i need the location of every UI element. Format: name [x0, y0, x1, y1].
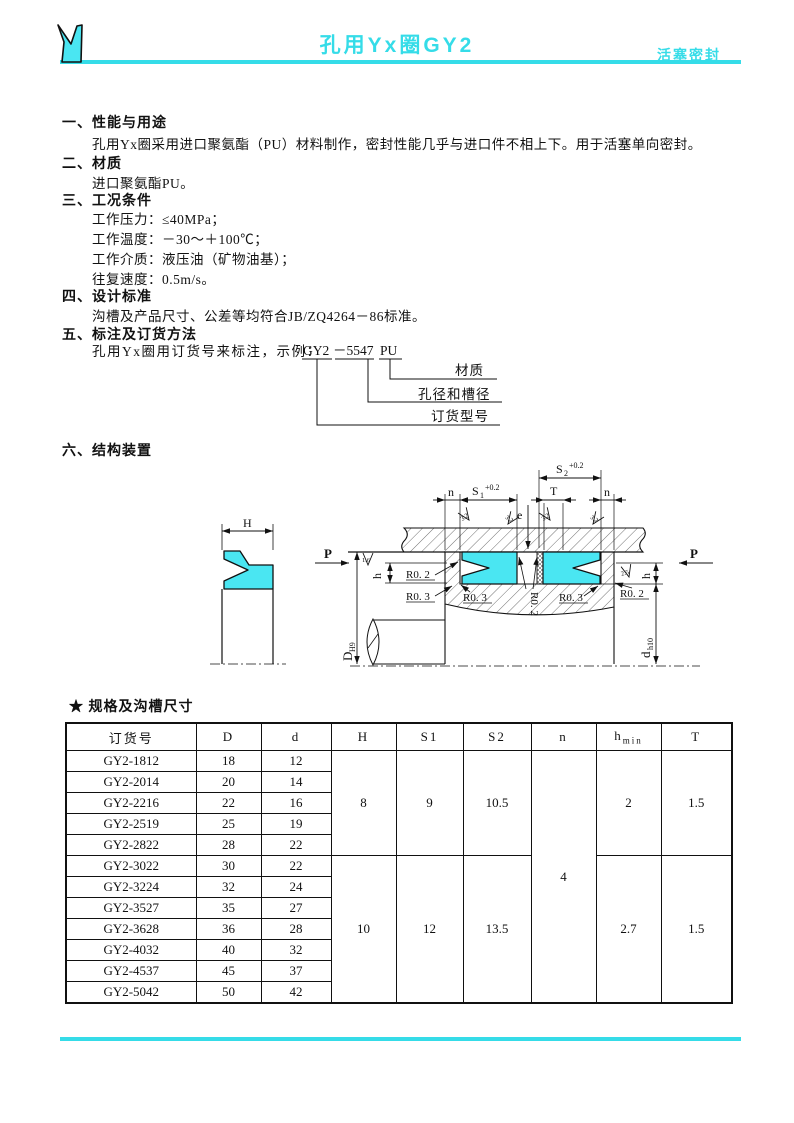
dim-n-left-label: n: [448, 485, 454, 499]
roughness-groove-icon: 3.2: [503, 511, 519, 527]
dim-D-label: D H9: [340, 642, 357, 661]
radius-callouts: R0. 2 R0. 3 R0. 3 R0. 3 R0. 2 R0. 2: [406, 557, 649, 616]
radius-right-label: R0. 2: [620, 588, 644, 600]
section-2-heading: 二、材质: [62, 153, 122, 173]
installed-seal-right: [543, 552, 600, 584]
working-medium-line: 工作介质：液压油（矿物油基）；: [92, 248, 295, 268]
order-code-cell: GY2-4537: [66, 961, 196, 982]
rod-break-symbol: [367, 619, 379, 665]
order-code-cell: GY2-4032: [66, 940, 196, 961]
svg-text:2: 2: [564, 469, 568, 478]
group2-T-cell: 1.5: [661, 856, 732, 1004]
svg-text:R0. 2: R0. 2: [528, 592, 540, 616]
rod-break-hatch: [368, 634, 378, 648]
col-header-S2: S2: [463, 723, 531, 751]
section-6-heading: 六、结构装置: [62, 440, 152, 460]
speed-line: 往复速度：0.5m/s。: [92, 268, 215, 288]
cylinder-wall-hatched: [402, 528, 646, 552]
ordering-label-model: 订货型号: [431, 408, 489, 424]
svg-text:S: S: [556, 462, 563, 476]
dim-e-label: e: [517, 508, 522, 522]
radius-left-top-label: R0. 2: [406, 569, 430, 581]
col-header-hmin: hmin: [596, 723, 661, 751]
piston-rod-lines: [374, 604, 614, 664]
star-icon: ★: [69, 700, 84, 715]
svg-text:D: D: [340, 652, 355, 661]
group1-H-cell: 8: [331, 751, 396, 856]
order-code-cell: GY2-2519: [66, 814, 196, 835]
section-3-heading: 三、工况条件: [62, 190, 152, 210]
radius-mid-right-label: R0. 3: [559, 592, 583, 604]
section-2-body: 进口聚氨酯PU。: [92, 172, 194, 192]
dim-h-right-label: h: [639, 573, 653, 579]
ordering-code-material: PU: [380, 343, 398, 358]
col-header-code: 订货号: [66, 723, 196, 751]
order-code-cell: GY2-2216: [66, 793, 196, 814]
svg-text:S: S: [472, 484, 479, 498]
svg-text:+0.2: +0.2: [485, 483, 500, 492]
col-header-T: T: [661, 723, 732, 751]
svg-text:h10: h10: [646, 638, 655, 650]
section-5-heading: 五、标注及订货方法: [62, 324, 197, 344]
dim-S2-label: S 2 +0.2: [556, 461, 584, 478]
roughness-groove-icon: 3.2: [457, 507, 473, 523]
pressure-right-label: P: [690, 546, 698, 561]
table-header-row: 订货号 D d H S1 S2 n hmin T: [66, 723, 732, 751]
svg-text:3.2: 3.2: [504, 514, 515, 524]
roughness-land-icon: 2.5: [619, 564, 634, 579]
h-extension-lines: [222, 524, 273, 550]
radius-mid-left-label: R0. 3: [463, 592, 487, 604]
dim-n-right-label: n: [604, 485, 610, 499]
ordering-leader-lines: [302, 359, 502, 425]
svg-text:H9: H9: [348, 642, 357, 652]
order-code-cell: GY2-2822: [66, 835, 196, 856]
n-cell: 4: [531, 751, 596, 1004]
table-row: GY2-3022 3022 10 12 13.5 2.7 1.5: [66, 856, 732, 877]
table-row: GY2-1812 18 12 8 9 10.5 4 2 1.5: [66, 751, 732, 772]
col-header-S1: S1: [396, 723, 463, 751]
order-code-cell: GY2-3022: [66, 856, 196, 877]
spacer-ring: [537, 552, 543, 584]
order-code-cell: GY2-2014: [66, 772, 196, 793]
section-1-heading: 一、性能与用途: [62, 112, 167, 132]
group2-H-cell: 10: [331, 856, 396, 1004]
spec-table: 订货号 D d H S1 S2 n hmin T GY2-1812 18 12 …: [65, 722, 733, 1004]
col-header-d: d: [261, 723, 331, 751]
dim-H-label: H: [243, 516, 252, 530]
ordering-code-model: GY2: [303, 343, 329, 358]
section-4-heading: 四、设计标准: [62, 286, 152, 306]
seal-profile: [224, 551, 273, 589]
svg-text:1: 1: [480, 491, 484, 500]
group2-hmin-cell: 2.7: [596, 856, 661, 1004]
installed-seal-left: [462, 552, 517, 584]
dim-S1-label: S 1 +0.2: [472, 483, 500, 500]
svg-text:+0.2: +0.2: [569, 461, 584, 470]
extension-lines: [385, 470, 663, 584]
ordering-label-bore: 孔径和槽径: [418, 387, 491, 402]
group1-S1-cell: 9: [396, 751, 463, 856]
section-1-body: 孔用Yx圈采用进口聚氨酯（PU）材料制作，密封性能几乎与进口件不相上下。用于活塞…: [92, 133, 702, 153]
group1-hmin-cell: 2: [596, 751, 661, 856]
svg-text:h: h: [639, 573, 653, 579]
roughness-groove-icon: 3.2: [538, 507, 554, 523]
dim-T-label: T: [550, 484, 558, 498]
footer-rule: [60, 1037, 741, 1041]
col-header-H: H: [331, 723, 396, 751]
svg-text:3.2: 3.2: [540, 512, 551, 522]
dimension-lines: [357, 478, 656, 664]
svg-text:3.2: 3.2: [459, 512, 470, 522]
pressure-left-label: P: [324, 546, 332, 561]
group1-S2-cell: 10.5: [463, 751, 531, 856]
dim-d-label: d h10: [638, 638, 655, 658]
svg-text:d: d: [638, 651, 653, 658]
radius-left-bottom-label: R0. 3: [406, 591, 430, 603]
seal-section-figure: H: [210, 516, 286, 664]
header-rule: [60, 60, 741, 64]
svg-text:h: h: [370, 573, 384, 579]
svg-text:1.6: 1.6: [362, 557, 371, 564]
piston-hatched: [445, 552, 614, 615]
installation-figure: P P n n S 1 +0.2 S 2 +0.2 T e D H9 d h10…: [315, 461, 713, 666]
working-temperature-line: 工作温度：－30～＋100℃；: [92, 228, 268, 248]
ordering-prefix: 孔用Yx圈用订货号来标注，示例：: [92, 343, 322, 359]
radius-center-label: R0. 2: [528, 592, 540, 616]
order-code-cell: GY2-3224: [66, 877, 196, 898]
col-header-D: D: [196, 723, 261, 751]
working-pressure-line: 工作压力：≤40MPa；: [92, 208, 225, 228]
order-code-cell: GY2-1812: [66, 751, 196, 772]
group2-S2-cell: 13.5: [463, 856, 531, 1004]
table-caption: ★ 规格及沟槽尺寸: [69, 696, 194, 716]
catalog-page: { "accent": "#35dce8", "seal_fill": "#4a…: [0, 0, 794, 1123]
svg-text:3.2: 3.2: [589, 514, 600, 524]
section-4-body: 沟槽及产品尺寸、公差等均符合JB/ZQ4264－86标准。: [92, 305, 426, 325]
ordering-code-size: －5547: [333, 343, 374, 358]
roughness-groove-icon: 3.2: [588, 511, 604, 527]
group2-S1-cell: 12: [396, 856, 463, 1004]
dim-h-left-label: h: [370, 573, 384, 579]
order-code-cell: GY2-3527: [66, 898, 196, 919]
svg-text:2.5: 2.5: [620, 569, 630, 578]
order-code-cell: GY2-5042: [66, 982, 196, 1004]
roughness-bore-icon: 1.6: [362, 553, 373, 565]
order-code-cell: GY2-3628: [66, 919, 196, 940]
ordering-example: 孔用Yx圈用订货号来标注，示例： GY2 －5547 PU 材质 孔径和槽径 订…: [92, 343, 502, 425]
group1-T-cell: 1.5: [661, 751, 732, 856]
bore-lines: [222, 589, 273, 664]
ordering-label-material: 材质: [455, 363, 484, 378]
col-header-n: n: [531, 723, 596, 751]
